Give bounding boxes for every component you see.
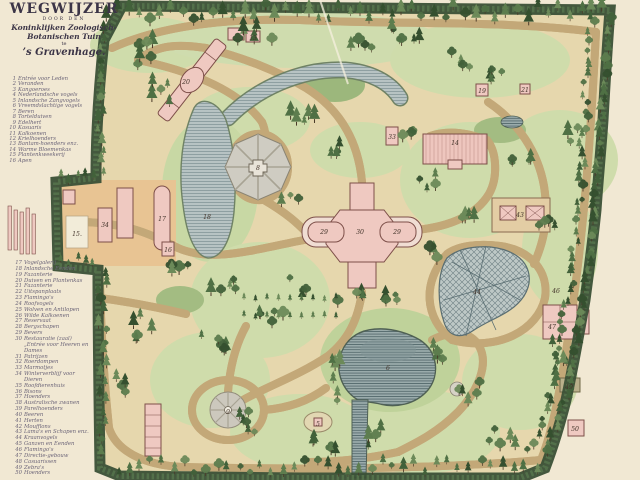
map-marker-18: 18	[203, 214, 211, 221]
map-marker-47: 47	[547, 324, 556, 331]
title-line4: Botanischen Tuin	[4, 32, 124, 41]
long-pond	[181, 101, 235, 258]
map-marker-50: 50	[571, 426, 579, 433]
map-marker-14: 14	[451, 140, 459, 147]
map-marker-30: 30	[356, 229, 364, 236]
title-city: ’s Gravenhage.	[4, 47, 124, 59]
map-marker-6: 6	[386, 365, 390, 372]
legend-item-label: Apen	[18, 159, 94, 164]
legend-item-label: Winterverblijf voor Dieren	[24, 372, 92, 384]
title-main: WEGWIJZER	[4, 2, 124, 17]
map-marker-49: 49	[564, 384, 573, 391]
map-marker-8: 8	[256, 165, 260, 172]
nursery-beds	[8, 206, 35, 254]
greenhouse-porch	[448, 160, 462, 169]
map-marker-29: 29	[392, 229, 401, 236]
map-marker-15: 15.	[72, 231, 82, 238]
park-map: 132081817163415.143319212930294344464765…	[0, 0, 640, 480]
map-marker-17: 17	[158, 216, 166, 223]
map-marker-46: 46	[551, 288, 560, 295]
map-marker-34: 34	[101, 222, 109, 229]
map-title: WEGWIJZER DOOR DEN Koninklijken Zoologis…	[4, 2, 124, 59]
entrance-hall	[117, 188, 133, 238]
legend-item-number: 34	[12, 372, 22, 384]
pond-shading	[360, 338, 416, 362]
map-marker-9: 9	[226, 409, 230, 416]
map-marker-16: 16	[164, 247, 172, 254]
map-marker-44: 44	[472, 289, 481, 296]
legend-item: 16 Apen	[6, 159, 94, 164]
map-marker-13: 13	[249, 35, 257, 42]
legend-item-number: 30	[12, 337, 22, 355]
map-marker-19: 19	[478, 88, 486, 95]
map-marker-21: 21	[520, 87, 529, 94]
legend-list-top: 1 Entrée voor Leden 2 Veranden 3 Kangoer…	[6, 77, 94, 164]
map-marker-20: 20	[181, 79, 190, 86]
legend-list-bottom: 17 Vogelgalerij 18 Inlandsche Eenden 19 …	[12, 261, 92, 477]
gate-building	[63, 190, 75, 204]
legend-item: 34 Winterverblijf voor Dieren	[12, 372, 92, 384]
legend-item-number: 50	[12, 471, 22, 477]
legend-item: 50 Hoenders	[12, 471, 92, 477]
legend-item-label: Hoenders	[24, 471, 92, 477]
legend-item: 30 Restauratie (zaal) „Entrée voor Heere…	[12, 337, 92, 355]
map-marker-5: 5	[316, 421, 320, 428]
main-building-north-wing	[350, 183, 374, 213]
zoo-map-page: 132081817163415.143319212930294344464765…	[0, 0, 640, 480]
small-pond	[501, 116, 523, 128]
legend-item-number: 16	[6, 159, 16, 164]
title-line3: Koninklijken Zoologisch-	[4, 23, 124, 32]
map-marker-33: 33	[388, 134, 396, 141]
legend-item-label: Restauratie (zaal) „Entrée voor Heeren e…	[24, 337, 92, 355]
map-marker-43: 43	[515, 212, 524, 219]
map-marker-29: 29	[319, 229, 328, 236]
